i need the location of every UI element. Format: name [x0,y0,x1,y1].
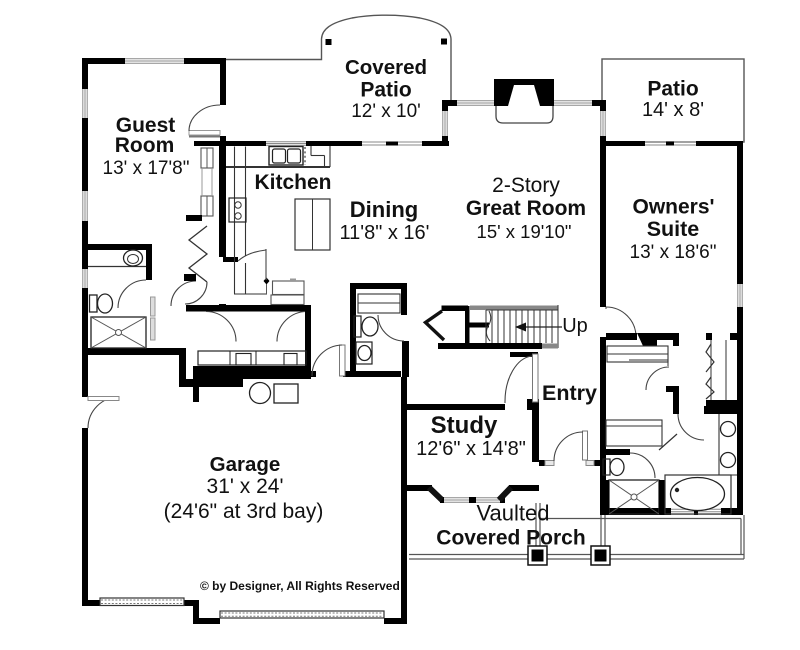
svg-text:Great Room: Great Room [466,197,586,220]
svg-text:14' x 8': 14' x 8' [642,99,704,121]
svg-text:15' x 19'10": 15' x 19'10" [477,221,572,242]
svg-text:13' x 17'8": 13' x 17'8" [103,158,190,179]
svg-text:Garage: Garage [210,453,281,476]
svg-text:2-Story: 2-Story [492,174,560,197]
svg-text:Vaulted: Vaulted [477,501,550,526]
svg-text:12'6" x 14'8": 12'6" x 14'8" [416,438,526,460]
svg-text:Covered Porch: Covered Porch [436,527,585,550]
svg-text:Kitchen: Kitchen [254,171,331,194]
svg-text:Dining: Dining [350,197,418,222]
svg-text:11'8" x 16': 11'8" x 16' [340,222,430,244]
svg-text:Study: Study [431,412,498,439]
svg-text:Up: Up [562,315,588,337]
svg-text:13' x 18'6": 13' x 18'6" [630,242,717,263]
svg-text:12' x 10': 12' x 10' [351,101,421,122]
svg-text:Entry: Entry [542,381,597,405]
svg-text:Covered: Covered [345,56,427,79]
svg-text:Suite: Suite [647,217,700,241]
svg-text:Owners': Owners' [632,196,714,219]
svg-text:Patio: Patio [360,79,411,102]
svg-text:Patio: Patio [647,78,698,101]
svg-text:© by Designer, All Rights Rese: © by Designer, All Rights Reserved [200,579,400,593]
svg-text:Room: Room [115,134,175,157]
svg-text:(24'6" at 3rd bay): (24'6" at 3rd bay) [164,500,324,523]
svg-text:31' x 24': 31' x 24' [207,475,284,498]
